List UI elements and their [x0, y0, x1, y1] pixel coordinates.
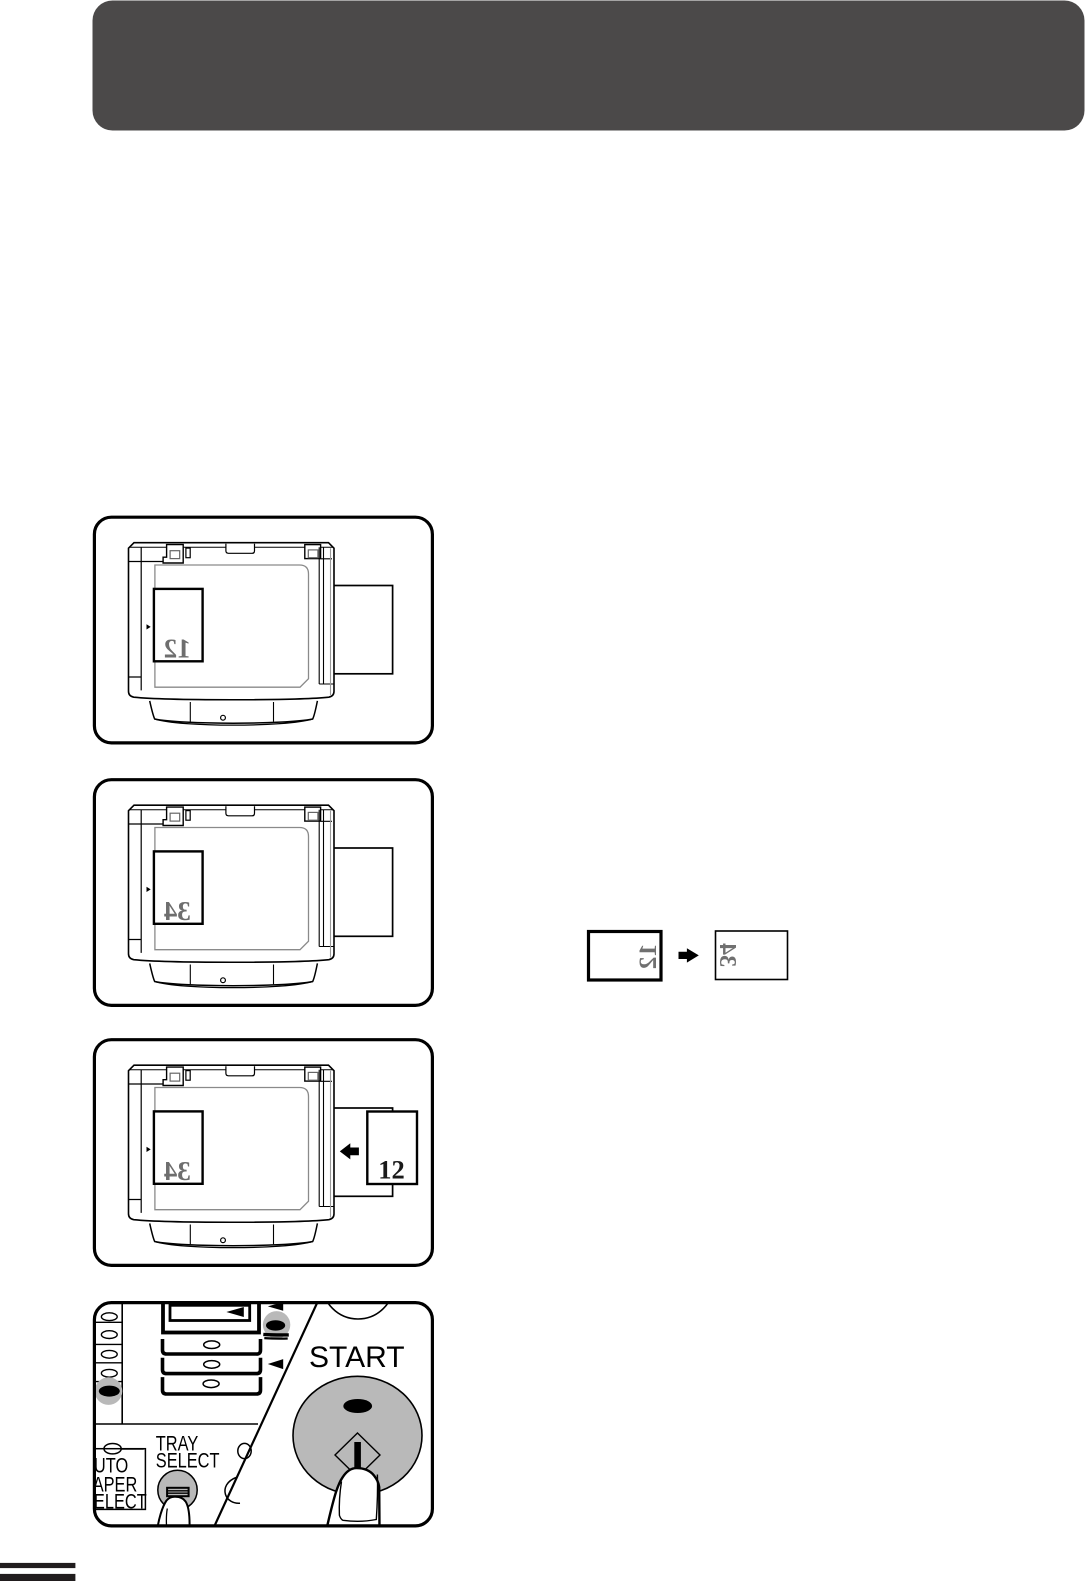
svg-text:12: 12 — [378, 1155, 405, 1185]
svg-text:START: START — [309, 1341, 405, 1374]
svg-text:12: 12 — [164, 633, 191, 663]
svg-text:SELECT: SELECT — [83, 1490, 147, 1513]
svg-text:34: 34 — [164, 896, 191, 926]
svg-text:SELECT: SELECT — [156, 1449, 220, 1472]
svg-text:12: 12 — [633, 944, 662, 970]
svg-text:34: 34 — [714, 943, 740, 967]
svg-text:34: 34 — [164, 1156, 191, 1186]
